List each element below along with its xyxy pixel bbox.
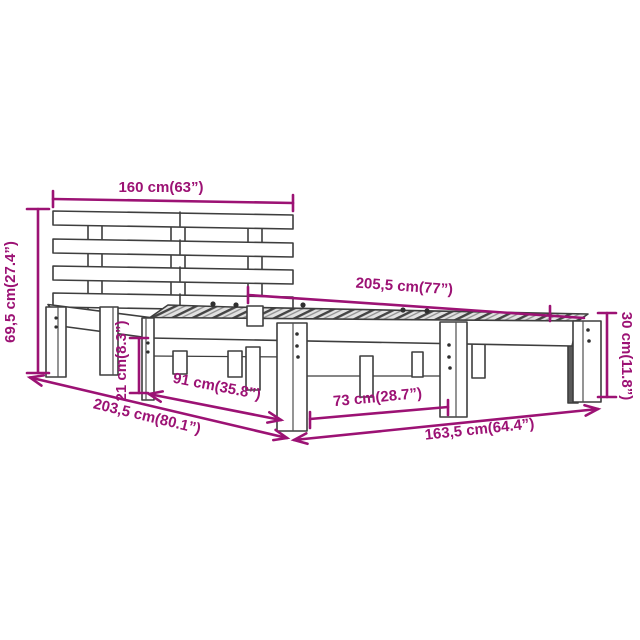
mattress-stop [424,308,429,313]
dimension-label-leg-spacing-foot: 73 cm(28.7”) [332,385,422,410]
headboard-slat-3 [53,266,293,284]
mattress-stop [400,307,405,312]
mattress-stop [300,302,305,307]
front-leg-2 [142,318,154,400]
rear-leg [228,351,242,377]
mattress-stop [233,302,238,307]
dimension-label-side-height: 30 cm(11.8”) [618,312,635,400]
mattress-stop [210,301,215,306]
headboard-post-right-front [247,306,263,326]
dimension-label-under-clearance: 21 cm(8.3”) [113,321,130,402]
dimension-label-headboard-height: 69,5 cm(27.4”) [2,241,19,343]
dimension-label-total-length: 205,5 cm(77”) [355,275,454,299]
dimension-label-frame-length: 163,5 cm(64.4”) [424,415,535,443]
front-leg-center-a [277,323,307,431]
headboard-slat-1 [53,211,293,229]
bed-frame-diagram-canvas: 160 cm(63”) 69,5 cm(27.4”) 205,5 cm(77”)… [0,0,640,640]
headboard-post-center [171,219,185,307]
dimension-label-headboard-width: 160 cm(63”) [118,179,203,196]
front-leg-center-b [440,322,467,417]
headboard-slat-2 [53,239,293,257]
rear-rail-edge [150,356,292,357]
rear-leg [412,352,423,377]
front-leg-foot [573,321,601,402]
product-dimension-diagram: 160 cm(63”) 69,5 cm(27.4”) 205,5 cm(77”)… [0,0,640,640]
rear-leg [472,340,485,378]
